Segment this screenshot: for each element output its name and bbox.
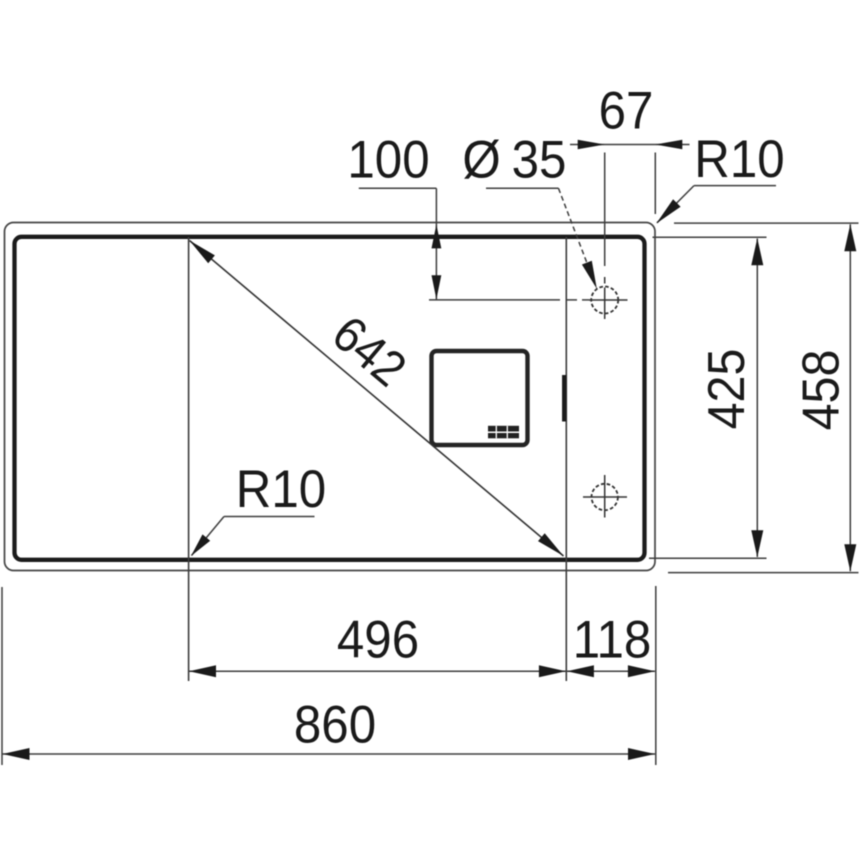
svg-text:458: 458 bbox=[792, 350, 850, 431]
svg-text:R10: R10 bbox=[694, 129, 784, 188]
svg-text:Ø: Ø bbox=[462, 130, 500, 189]
svg-text:R10: R10 bbox=[236, 459, 326, 518]
svg-text:35: 35 bbox=[512, 130, 567, 189]
svg-text:100: 100 bbox=[347, 130, 429, 189]
svg-text:496: 496 bbox=[337, 610, 419, 669]
svg-text:425: 425 bbox=[698, 349, 756, 430]
svg-text:118: 118 bbox=[573, 610, 652, 669]
svg-text:860: 860 bbox=[294, 695, 376, 754]
svg-text:67: 67 bbox=[599, 81, 654, 140]
